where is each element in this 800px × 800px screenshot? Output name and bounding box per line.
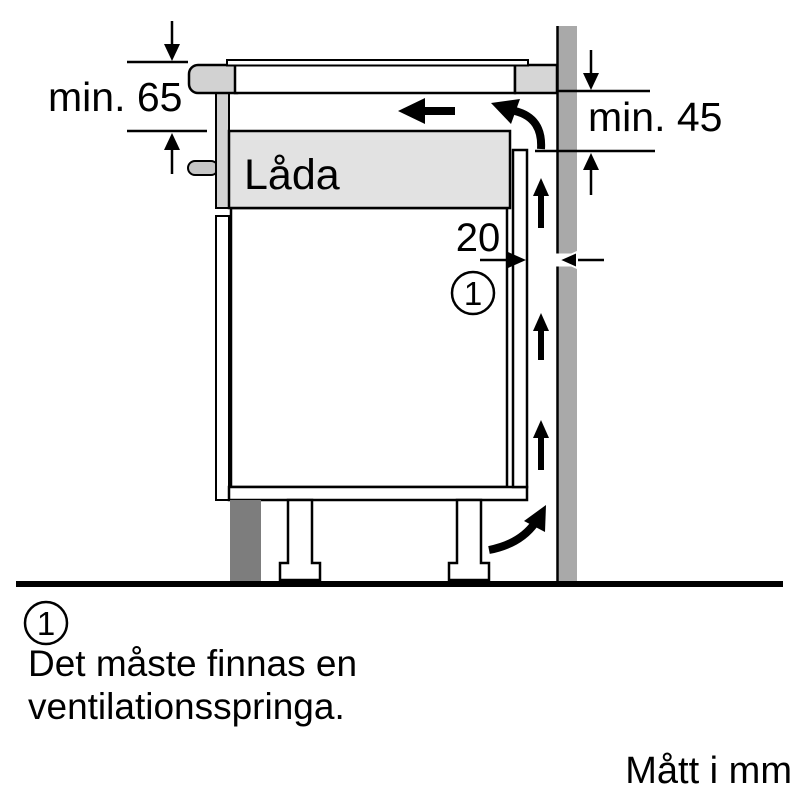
worktop-back-piece: [515, 65, 557, 93]
airflow-up-arrowhead-1: [533, 178, 549, 196]
gap20-label: 20: [456, 216, 501, 260]
drawer-label: Låda: [244, 151, 340, 199]
hob-body: [235, 65, 515, 93]
min45-up-arrowhead: [583, 153, 599, 170]
cabinet-door-front: [216, 216, 229, 500]
airflow-over-partition-curve: [515, 111, 541, 149]
worktop-front-edge: [189, 65, 237, 93]
plinth: [230, 500, 261, 581]
airflow-forward-arrowhead: [398, 98, 425, 124]
callout-1: 1: [452, 272, 494, 314]
worktop-hob: [189, 60, 557, 93]
drawer-assembly: Låda: [188, 93, 510, 208]
wall: [557, 26, 577, 582]
min65-down-arrowhead: [164, 44, 180, 61]
footnote-line1: Det måste finnas en: [28, 643, 357, 684]
airflow-up-arrowhead-3: [533, 420, 549, 438]
callout-1-digit: 1: [464, 275, 482, 312]
cabinet-foot-front: [280, 500, 320, 580]
hob-glass-top: [227, 60, 528, 66]
airflow-up-arrowhead-2: [533, 313, 549, 331]
base-cabinet: [216, 150, 527, 581]
min65-label: min. 65: [48, 74, 182, 120]
airflow-inlet-curve: [489, 523, 535, 550]
drawer-handle: [188, 161, 218, 175]
min65-up-arrowhead: [164, 133, 180, 150]
footnote-line2: ventilationsspringa.: [28, 686, 345, 727]
dimension-min65: min. 65: [48, 21, 207, 174]
back-panel: [513, 150, 527, 487]
footnote: 1 Det måste finnas en ventilationsspring…: [25, 602, 357, 727]
installation-diagram-page: Låda min. 65 min. 45 20: [0, 0, 800, 800]
drawer-front-panel: [216, 93, 229, 208]
min45-down-arrowhead: [583, 73, 599, 90]
units-note: Mått i mm: [625, 750, 792, 792]
cabinet-foot-back: [449, 500, 489, 580]
wall-fill: [557, 26, 577, 582]
footnote-marker-digit: 1: [37, 605, 55, 642]
installation-diagram: Låda min. 65 min. 45 20: [0, 0, 800, 800]
min45-label: min. 45: [588, 94, 722, 140]
cabinet-bottom-panel: [229, 487, 527, 500]
